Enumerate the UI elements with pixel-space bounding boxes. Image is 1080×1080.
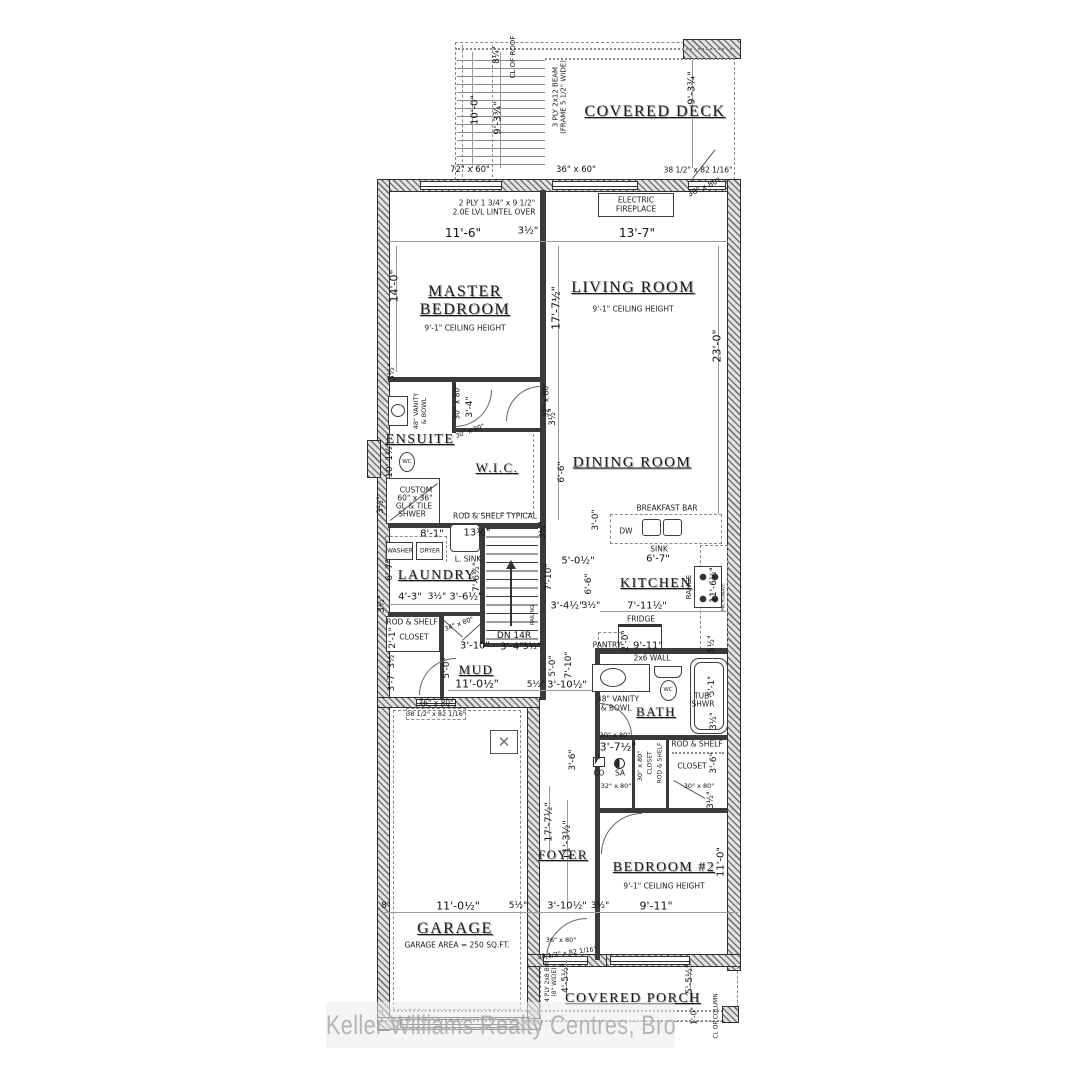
room-label-master-2: BEDROOM bbox=[420, 301, 511, 319]
dim: 11'-0½" bbox=[436, 900, 480, 913]
garage-inner-dashed bbox=[393, 710, 521, 1010]
room-label-living: LIVING ROOM bbox=[571, 279, 695, 297]
window-bedroom2 bbox=[610, 956, 690, 965]
dim: 1'-0" bbox=[690, 1007, 699, 1025]
door-size: 38 1/2" x 82 1/16" bbox=[406, 710, 466, 718]
deck-beam-note-line1: 3 PLY 2x12 BEAM bbox=[552, 60, 560, 134]
closet-rod-shelf: ROD & SHELF bbox=[386, 618, 437, 627]
dim: 8" bbox=[381, 901, 391, 911]
dim: 11'-6½" bbox=[709, 567, 719, 603]
dim: 3'-10" bbox=[460, 641, 490, 652]
bedroom2-door-arc bbox=[601, 813, 642, 854]
porch-beam-note: 4 PLY 2x8 BM (8" WIDE) bbox=[544, 962, 558, 1002]
dim: 13'-7" bbox=[619, 226, 655, 240]
dim: 11'-0½" bbox=[455, 678, 499, 691]
window-living bbox=[552, 181, 638, 190]
dim: 8¼" bbox=[492, 46, 502, 64]
dim: 4'-5½" bbox=[561, 963, 571, 993]
room-label-garage: GARAGE bbox=[417, 920, 493, 938]
roof-centerline-note: CL OF ROOF bbox=[509, 36, 517, 79]
dim: 4'-3" bbox=[398, 592, 422, 603]
window-size: 36" x 60" bbox=[556, 165, 596, 175]
wall-linen-right bbox=[666, 740, 669, 808]
bath-wc-label: WC bbox=[663, 687, 672, 693]
door-size: 36" x 80" bbox=[418, 699, 453, 708]
porch-beam-line1: 4 PLY 2x8 BM bbox=[544, 962, 551, 1002]
dim-line bbox=[388, 241, 728, 242]
bath-vanity-bowl bbox=[600, 668, 626, 687]
wall-wc-bump bbox=[368, 441, 380, 477]
dim: 2'-0" bbox=[621, 630, 631, 651]
bath-shelf bbox=[654, 666, 682, 678]
deck-edge-dotted bbox=[545, 58, 735, 60]
dim: 3'-4" bbox=[500, 642, 524, 653]
dim: 14'-0" bbox=[388, 269, 401, 302]
washer-label: WASHER bbox=[387, 548, 413, 555]
dim: 3½" bbox=[377, 595, 387, 613]
floor-plan-canvas: COVERED DECK 10'-0" 9'-3¾" 8¼" 9'-3¾" 3 … bbox=[0, 0, 1080, 1080]
dim: 10'-0" bbox=[470, 95, 481, 125]
dim: 3½" bbox=[376, 496, 386, 514]
bath-vanity-label-2: & BOWL bbox=[601, 704, 632, 713]
kitchen-sink-right bbox=[663, 519, 682, 536]
wall-garage-top bbox=[378, 698, 539, 707]
dim: 5½" bbox=[509, 901, 528, 911]
dim: 11'-0" bbox=[716, 847, 727, 877]
dim: 9'-3¾" bbox=[687, 71, 698, 104]
microwave-label: MICROWAVE bbox=[722, 583, 727, 611]
window-size: 72" x 60" bbox=[450, 165, 490, 175]
dim: 5'-0" bbox=[442, 657, 452, 678]
dim: 5'-0½" bbox=[561, 556, 594, 567]
dim: 23'-0" bbox=[711, 329, 724, 362]
ensuite-vanity-bowl bbox=[391, 404, 405, 417]
dim: 3½" bbox=[518, 226, 539, 237]
dim: 3½" bbox=[548, 408, 558, 426]
door-size: 30" x 80" bbox=[600, 731, 631, 739]
door-size: 30" x 80" bbox=[684, 782, 715, 790]
dim: 9'-11" bbox=[639, 900, 672, 913]
wic-rod-shelf-note: ROD & SHELF TYPICAL bbox=[453, 512, 537, 521]
door-size: 38 1/2" x 82 1/16" bbox=[664, 166, 733, 175]
dim: 2'-1" bbox=[388, 627, 398, 648]
dim: 6'-6" bbox=[584, 573, 594, 594]
garage-floor-drain: ✕ bbox=[490, 730, 518, 754]
dim: 3'-7" 3½" bbox=[387, 651, 397, 691]
ensuite-wc-label: WC bbox=[402, 459, 411, 465]
stair-arrow-line bbox=[510, 568, 512, 626]
pantry-label: PANTRY bbox=[593, 641, 622, 650]
wall-center bbox=[540, 190, 546, 700]
column-centerline-note: CL OF COLUMN bbox=[713, 993, 720, 1039]
room-label-ensuite: ENSUITE bbox=[386, 432, 455, 448]
tub-label-2: SHWR bbox=[691, 700, 714, 709]
fireplace-label-1: ELECTRIC bbox=[618, 196, 654, 205]
sa-label: SA bbox=[615, 769, 625, 778]
stairs-dn-label: DN 14R bbox=[497, 631, 531, 641]
door-size: 30" x 80" bbox=[453, 384, 462, 419]
room-label-foyer: FOYER bbox=[538, 847, 588, 863]
closet-label: CLOSET bbox=[399, 633, 428, 642]
dw-label: DW bbox=[619, 527, 632, 536]
co-detector-symbol bbox=[594, 758, 604, 766]
co-label: CO bbox=[593, 769, 604, 778]
dim: 17'-7½" bbox=[550, 286, 563, 330]
dim: 5½" bbox=[527, 680, 546, 690]
master-ceiling-note: 9'-1" CEILING HEIGHT bbox=[424, 324, 505, 333]
window-master bbox=[420, 181, 502, 190]
room-label-wic: W.I.C. bbox=[476, 460, 519, 476]
dim: 5'-0" bbox=[548, 655, 558, 676]
dim: 3½" bbox=[591, 901, 610, 911]
lintel-note-1: 2 PLY 1 3/4" x 9 1/2" bbox=[459, 199, 535, 208]
dim: 10'-1½" bbox=[385, 442, 395, 478]
porch-beam-line2: (8" WIDE) bbox=[551, 962, 558, 1002]
door-size: 34" x 80" bbox=[443, 615, 474, 633]
garage-area-note: GARAGE AREA = 250 SQ.FT. bbox=[404, 941, 509, 950]
room-label-bedroom2: BEDROOM #2 bbox=[613, 860, 716, 876]
dim-line bbox=[396, 246, 397, 372]
dim: 11'-6" bbox=[445, 226, 481, 240]
kitchen-sink-left bbox=[642, 519, 661, 536]
dim: 3'-4" bbox=[465, 396, 475, 417]
smoke-alarm-symbol bbox=[615, 759, 624, 768]
linen-rod-shelf-label: ROD & SHELF bbox=[657, 743, 664, 784]
master-door-arc bbox=[506, 386, 541, 421]
door-size: 36" x 80" bbox=[546, 936, 577, 944]
bed2-closet-rod-shelf: ROD & SHELF bbox=[671, 740, 722, 749]
bath-vanity-label-1: 48" VANITY bbox=[597, 695, 639, 704]
room-label-bath: BATH bbox=[636, 704, 676, 720]
dim: 3'-4½" bbox=[550, 601, 583, 612]
dim: 3½" bbox=[709, 712, 719, 730]
room-label-laundry: LAUNDRY bbox=[398, 568, 476, 584]
room-label-dining: DINING ROOM bbox=[573, 455, 692, 472]
wall-2x6-note: 2x6 WALL bbox=[634, 654, 671, 663]
dryer-label: DRYER bbox=[420, 548, 440, 555]
wall-master-ensuite bbox=[388, 377, 540, 382]
dim: 8'-1" bbox=[420, 529, 444, 540]
dim: 6'-7" bbox=[646, 554, 670, 565]
dim: 3'-6" bbox=[709, 752, 719, 773]
railing-label: RAILING bbox=[530, 605, 536, 625]
room-label-kitchen: KITCHEN bbox=[620, 576, 692, 592]
dim: 6'-6" bbox=[557, 461, 567, 482]
deck-beam-note: 3 PLY 2x12 BEAM (FRAME 5 1/2" WIDE) bbox=[552, 60, 569, 134]
dim-line bbox=[385, 604, 480, 605]
porch-column bbox=[723, 1007, 738, 1022]
dim: 3½" bbox=[523, 642, 542, 652]
dim: 9'-3¾" bbox=[493, 101, 504, 134]
dim: 5½" bbox=[707, 635, 717, 653]
room-label-mud: MUD bbox=[459, 662, 494, 678]
dim: 3'-10½" bbox=[547, 901, 587, 912]
dim-line bbox=[718, 246, 719, 514]
dim: 9'-11" bbox=[633, 641, 663, 652]
dim: 7'-10" bbox=[564, 651, 574, 678]
living-ceiling-note: 9'-1" CEILING HEIGHT bbox=[592, 305, 673, 314]
fireplace-label-2: FIREPLACE bbox=[616, 205, 656, 214]
wall-right bbox=[728, 180, 740, 970]
dim: 3'-6" bbox=[568, 749, 578, 770]
dim: 3'-7½" bbox=[600, 741, 637, 754]
dim: 3½" bbox=[706, 791, 716, 809]
room-label-covered-deck: COVERED DECK bbox=[584, 103, 725, 121]
deck-beam-note-line2: (FRAME 5 1/2" WIDE) bbox=[560, 60, 568, 134]
dim: 7'-11½" bbox=[627, 601, 667, 612]
breakfast-bar-label: BREAKFAST BAR bbox=[636, 504, 697, 513]
range-label: RANGE bbox=[685, 575, 693, 599]
ensuite-vanity-note: 48" VANITY & BOWL bbox=[413, 393, 429, 430]
watermark: Keller Williams Realty Centres, Brokerag… bbox=[326, 1002, 675, 1048]
dim: 3½" bbox=[582, 601, 601, 611]
dim: 13½" bbox=[463, 528, 490, 539]
shower-note-4: SHWER bbox=[398, 510, 426, 519]
dim: 3'-6½" bbox=[449, 592, 482, 603]
dim: 3½" bbox=[387, 363, 397, 381]
dim: 3'-0" bbox=[591, 509, 601, 530]
door-size: 30" x 80" bbox=[636, 751, 644, 782]
linen-closet-label: CLOSET bbox=[647, 751, 654, 774]
door-size: 32" x 80" bbox=[601, 782, 632, 790]
dim: 3½" bbox=[538, 521, 548, 539]
room-label-master-1: MASTER bbox=[428, 283, 502, 301]
dim: 3'-10½" bbox=[547, 680, 587, 691]
sink-label: SINK bbox=[650, 545, 668, 554]
dim: 7'-6½" bbox=[472, 562, 482, 592]
dim: 17'-7½" bbox=[544, 802, 555, 842]
stair-arrow-head bbox=[506, 560, 516, 569]
deck-beam-line bbox=[462, 45, 463, 177]
bedroom2-ceiling-note: 9'-1" CEILING HEIGHT bbox=[623, 882, 704, 891]
vanity-note-line2: & BOWL bbox=[421, 393, 429, 430]
dim: 5'-5½" bbox=[685, 964, 695, 994]
dim: 6'-7" bbox=[385, 559, 395, 580]
dim: 5'-1" bbox=[707, 676, 717, 696]
bed2-closet-label: CLOSET bbox=[677, 762, 706, 771]
dim: 3½" bbox=[428, 592, 447, 602]
dim: 7'-10" bbox=[544, 563, 554, 590]
lintel-note-2: 2.0E LVL LINTEL OVER bbox=[453, 208, 536, 217]
fridge-label: FRIDGE bbox=[627, 615, 655, 624]
